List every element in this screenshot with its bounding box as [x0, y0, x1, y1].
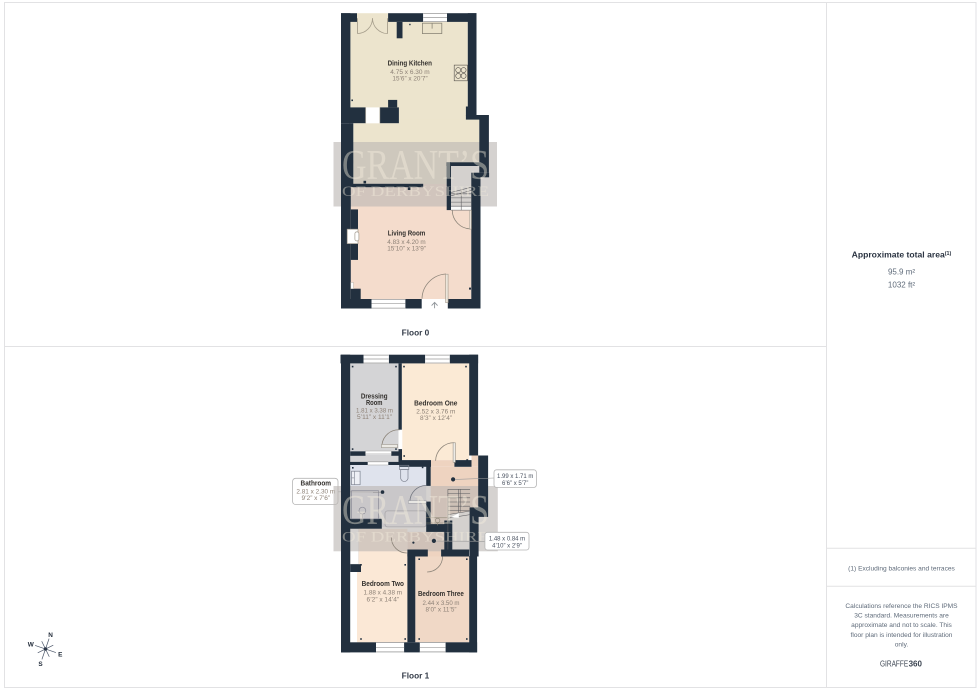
svg-text:Bedroom Three: Bedroom Three: [418, 589, 464, 598]
svg-text:Floor 0: Floor 0: [402, 328, 430, 337]
svg-text:Floor 1: Floor 1: [402, 672, 430, 681]
svg-text:360: 360: [909, 660, 923, 669]
svg-text:Approximate total area(1): Approximate total area(1): [852, 250, 952, 260]
svg-text:15’10” x 13’9”: 15’10” x 13’9”: [387, 245, 426, 252]
svg-text:1.88 x 4.38 m: 1.88 x 4.38 m: [364, 590, 403, 597]
svg-text:5’11” x 11’1”: 5’11” x 11’1”: [357, 414, 393, 421]
svg-text:only.: only.: [895, 642, 909, 649]
svg-text:W: W: [28, 642, 35, 649]
svg-text:1.99 x 1.71 m: 1.99 x 1.71 m: [497, 474, 533, 480]
svg-text:S: S: [38, 661, 43, 668]
svg-text:OF DERBYSHIRE: OF DERBYSHIRE: [342, 530, 489, 546]
svg-text:Room: Room: [366, 398, 383, 407]
svg-text:9’2” x 7’6”: 9’2” x 7’6”: [302, 495, 331, 502]
svg-text:floor plan is intended for ill: floor plan is intended for illustration: [851, 632, 953, 639]
svg-text:Calculations reference the RIC: Calculations reference the RICS IPMS: [845, 603, 958, 610]
svg-text:Living Room: Living Room: [388, 229, 426, 238]
svg-text:95.9 m²: 95.9 m²: [888, 267, 915, 276]
svg-text:1032 ft²: 1032 ft²: [888, 281, 915, 290]
svg-text:(1) Excluding balconies and te: (1) Excluding balconies and terraces: [848, 565, 955, 572]
svg-text:GRANT’S: GRANT’S: [342, 488, 489, 534]
svg-text:15’6” x 20’7”: 15’6” x 20’7”: [392, 75, 428, 82]
svg-text:1.48 x 0.84 m: 1.48 x 0.84 m: [489, 537, 525, 543]
svg-text:GIRAFFE: GIRAFFE: [880, 660, 908, 669]
svg-text:Bedroom Two: Bedroom Two: [362, 579, 405, 588]
svg-text:E: E: [58, 652, 63, 659]
svg-text:Dining Kitchen: Dining Kitchen: [388, 59, 432, 68]
svg-text:N: N: [48, 632, 53, 639]
svg-text:8’0” x 11’5”: 8’0” x 11’5”: [426, 606, 458, 613]
svg-text:GRANT’S: GRANT’S: [342, 143, 489, 189]
svg-text:Bedroom One: Bedroom One: [414, 398, 457, 407]
svg-text:3C standard. Measurements are: 3C standard. Measurements are: [854, 613, 949, 620]
svg-text:approximate and not to scale.: approximate and not to scale. This: [851, 622, 952, 629]
svg-text:8’3” x 12’4”: 8’3” x 12’4”: [420, 415, 453, 422]
svg-text:4’10” x 2’9”: 4’10” x 2’9”: [492, 544, 522, 550]
svg-text:6’2” x 14’4”: 6’2” x 14’4”: [367, 597, 400, 604]
svg-text:6’6” x 5’7”: 6’6” x 5’7”: [502, 481, 528, 487]
svg-text:OF DERBYSHIRE: OF DERBYSHIRE: [342, 184, 489, 200]
svg-text:Bathroom: Bathroom: [301, 478, 332, 487]
